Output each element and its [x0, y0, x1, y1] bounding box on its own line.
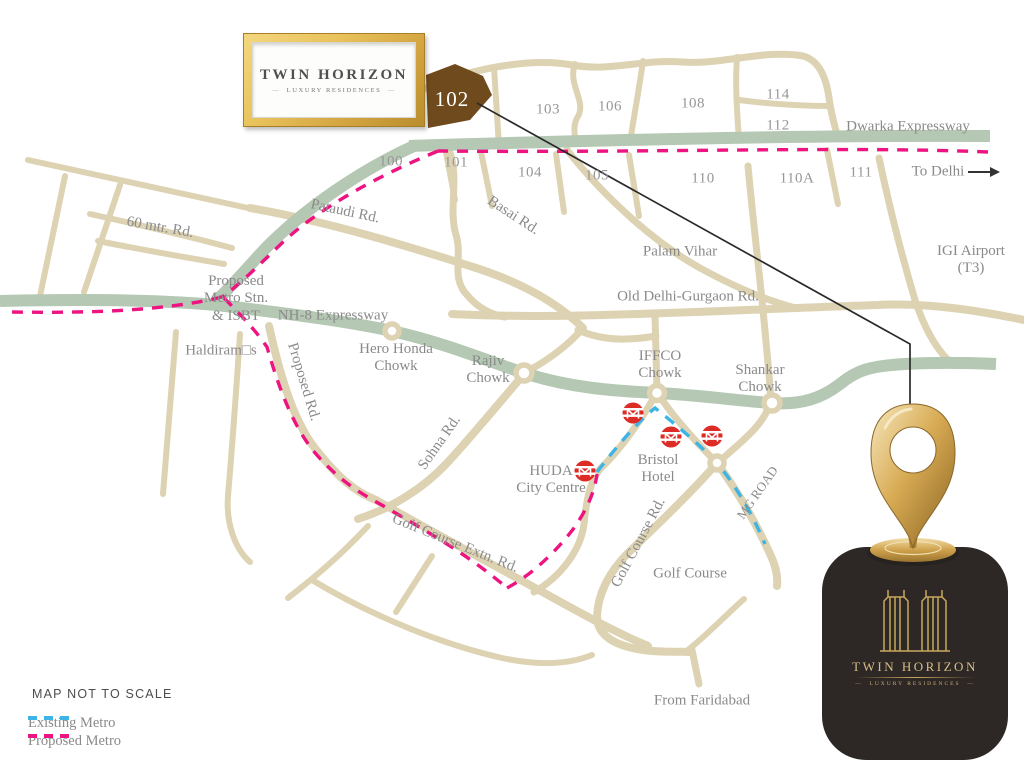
igi-airport-label: IGI Airport (T3)	[937, 243, 1005, 278]
proposed-metro-stn-line2: Metro Stn.	[204, 290, 268, 307]
iffco-chowk-label: IFFCO Chowk	[638, 348, 681, 383]
framed-logo: TWIN HORIZON LUXURY RESIDENCES	[243, 33, 425, 127]
location-map-page: 103 106 108 114 112 100 101 104 105 110 …	[0, 0, 1024, 784]
iffco-line1: IFFCO	[638, 348, 681, 365]
map-not-to-scale-note: MAP NOT TO SCALE	[32, 687, 173, 701]
from-faridabad-label: From Faridabad	[654, 692, 750, 709]
hero-honda-chowk-label: Hero Honda Chowk	[359, 341, 433, 376]
huda-line2: City Centre	[516, 480, 586, 497]
sector-label-111: 111	[850, 164, 873, 181]
sector-label-103: 103	[536, 101, 560, 118]
sector-label-108: 108	[681, 95, 705, 112]
proposed-metro-stn-label: Proposed Metro Stn. & ISBT	[204, 273, 268, 325]
framed-logo-mat: TWIN HORIZON LUXURY RESIDENCES	[252, 42, 416, 118]
proposed-metro-stn-line1: Proposed	[204, 273, 268, 290]
sector-label-110: 110	[691, 170, 714, 187]
iffco-line2: Chowk	[638, 365, 681, 382]
metro-station-icon	[622, 402, 645, 425]
iffco-chowk-node	[650, 386, 665, 401]
dwarka-expressway-label: Dwarka Expressway	[846, 118, 970, 135]
shankar-chowk-label: Shankar Chowk	[735, 362, 784, 397]
legend-proposed-metro: Proposed Metro	[28, 733, 121, 750]
project-badge: TWIN HORIZON LUXURY RESIDENCES	[822, 547, 1008, 760]
location-pin-icon	[855, 398, 971, 573]
hero-honda-line2: Chowk	[359, 358, 433, 375]
sector-label-104: 104	[518, 164, 542, 181]
sector-label-112: 112	[766, 117, 789, 134]
sector-label-114: 114	[766, 86, 789, 103]
sector-label-106: 106	[598, 98, 622, 115]
metro-station-icon	[574, 460, 597, 483]
badge-title: TWIN HORIZON	[822, 659, 1008, 675]
igi-airport-line1: IGI Airport	[937, 243, 1005, 260]
sector-label-100: 100	[379, 153, 403, 170]
rajiv-line1: Rajiv	[466, 353, 509, 370]
old-delhi-gurgaon-rd-label: Old Delhi-Gurgaon Rd.	[617, 288, 759, 305]
to-delhi-label: To Delhi	[912, 163, 965, 180]
haldirams-label: Haldiram□s	[185, 342, 257, 359]
proposed-metro-stn-line3: & ISBT	[204, 308, 268, 325]
igi-airport-line2: (T3)	[937, 260, 1005, 277]
badge-underline	[855, 677, 975, 678]
nh8-expressway-label: NH-8 Expressway	[278, 307, 388, 324]
dwarka-expressway-band	[409, 136, 990, 146]
metro-station-icon	[701, 425, 724, 448]
bristol-hotel-label: Bristol Hotel	[638, 452, 679, 487]
hero-honda-chowk-node	[385, 324, 399, 338]
rajiv-chowk-label: Rajiv Chowk	[466, 353, 509, 388]
hero-honda-line1: Hero Honda	[359, 341, 433, 358]
sector-label-101: 101	[444, 154, 468, 171]
shankar-line2: Chowk	[735, 379, 784, 396]
framed-logo-subtitle: LUXURY RESIDENCES	[272, 87, 396, 94]
shankar-chowk-node	[764, 395, 780, 411]
sector-label-105: 105	[585, 167, 609, 184]
framed-logo-title: TWIN HORIZON	[260, 67, 408, 84]
bristol-line1: Bristol	[638, 452, 679, 469]
sector-102-label: 102	[435, 87, 470, 111]
metro-station-icon	[660, 426, 683, 449]
rajiv-line2: Chowk	[466, 370, 509, 387]
rajiv-chowk-node	[516, 365, 532, 381]
mg-road-junction-node	[710, 456, 724, 470]
shankar-line1: Shankar	[735, 362, 784, 379]
palam-vihar-label: Palam Vihar	[643, 243, 717, 260]
proposed-metro-swatch	[28, 733, 70, 739]
arrow-right-icon	[968, 167, 1000, 177]
existing-metro-swatch	[28, 715, 70, 721]
legend-existing-metro: Existing Metro	[28, 715, 115, 732]
golf-course-label: Golf Course	[653, 565, 727, 582]
badge-subtitle: LUXURY RESIDENCES	[822, 681, 1008, 687]
bristol-line2: Hotel	[638, 469, 679, 486]
sector-label-110a: 110A	[780, 170, 815, 187]
